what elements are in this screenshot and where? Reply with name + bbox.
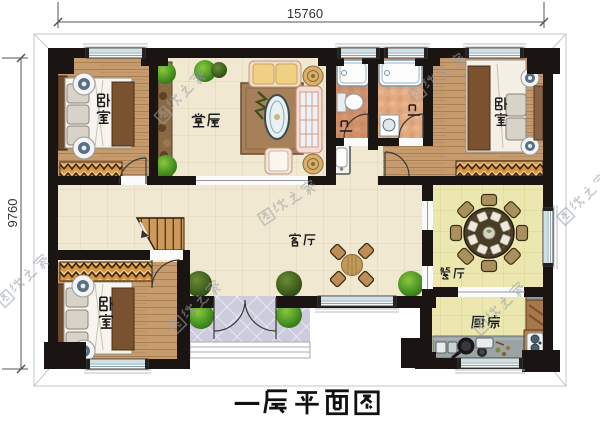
svg-text:9760: 9760 (5, 199, 20, 228)
svg-text:15760: 15760 (287, 6, 323, 21)
